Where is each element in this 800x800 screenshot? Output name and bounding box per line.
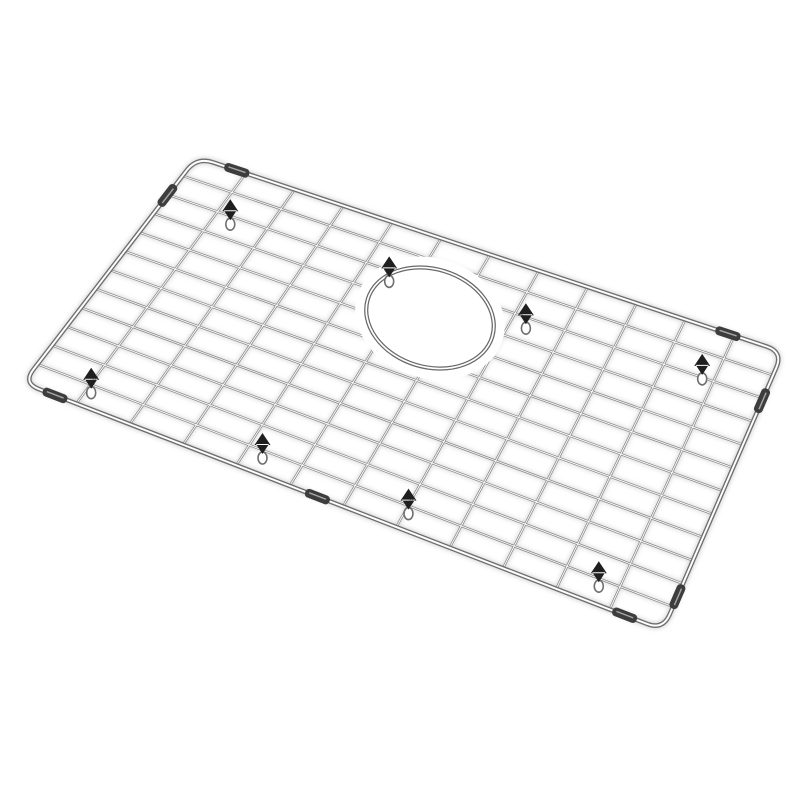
protective-clip [156, 182, 179, 208]
protective-clip [611, 606, 638, 624]
protective-clip [668, 583, 687, 610]
protective-clip [714, 325, 742, 342]
product-photo [0, 0, 800, 800]
grid-wires [38, 173, 774, 609]
protective-clip [41, 387, 68, 405]
protective-clip [304, 488, 331, 506]
grid-frame [29, 161, 778, 626]
protective-clip [223, 162, 251, 179]
sink-grid-illustration [0, 0, 800, 800]
protective-clip [753, 387, 772, 414]
